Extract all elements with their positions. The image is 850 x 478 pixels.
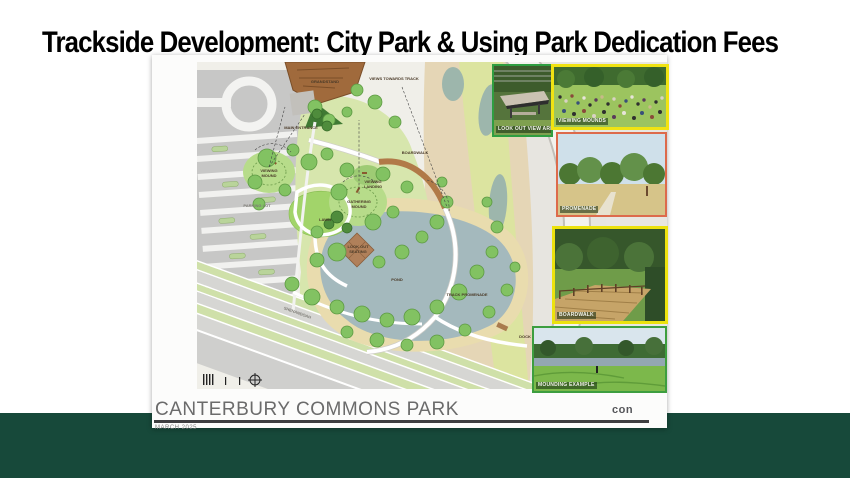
photo-boardwalk-image bbox=[555, 229, 665, 321]
sheet-title: CANTERBURY COMMONS PARK bbox=[155, 399, 459, 421]
label-main-entrance: MAIN ENTRANCE bbox=[284, 125, 318, 130]
label-lawn: LAWN bbox=[319, 217, 331, 222]
photo-promenade-image bbox=[558, 134, 665, 215]
photo-boardwalk: BOARDWALK bbox=[552, 226, 668, 324]
label-track-promenade: TRACK PROMENADE bbox=[446, 292, 487, 297]
photo-lookout-view-area: LOOK OUT VIEW AREA bbox=[492, 64, 553, 137]
label-viewing-mound-2: MOUND bbox=[261, 173, 276, 178]
publisher-logo-fragment: con bbox=[612, 404, 633, 416]
photo-caption: MOUNDING EXAMPLE bbox=[536, 382, 597, 389]
photo-lookout-image bbox=[494, 66, 551, 135]
label-grandstand: GRANDSTAND bbox=[311, 79, 339, 84]
label-gathering-mound-2: MOUND bbox=[351, 204, 366, 209]
plan-sheet-page: GRANDSTAND VIEWS TOWARDS TRACK MAIN ENTR… bbox=[152, 55, 667, 428]
label-parking-lot: PARKING LOT bbox=[243, 203, 271, 208]
label-pond: POND bbox=[391, 277, 403, 282]
photo-caption: BOARDWALK bbox=[557, 312, 596, 319]
label-dock: DOCK bbox=[519, 334, 531, 339]
label-look-out-seating-2: SEATING bbox=[349, 249, 366, 254]
photo-promenade-meadow: PROMENADE bbox=[556, 132, 667, 217]
sheet-date: MARCH 2025 bbox=[155, 425, 197, 431]
photo-mounding-example: MOUNDING EXAMPLE bbox=[532, 326, 667, 393]
label-boardwalk: BOARDWALK bbox=[402, 150, 429, 155]
photo-viewing-mounds: VIEWING MOUNDS bbox=[551, 64, 669, 130]
label-views-towards-track: VIEWS TOWARDS TRACK bbox=[369, 76, 419, 81]
photo-caption: VIEWING MOUNDS bbox=[556, 118, 608, 125]
photo-caption: LOOK OUT VIEW AREA bbox=[496, 126, 553, 133]
photo-caption: PROMENADE bbox=[560, 206, 598, 213]
label-viewing-landing-2: LANDING bbox=[364, 184, 382, 189]
presentation-slide: Trackside Development: City Park & Using… bbox=[0, 0, 850, 478]
sheet-title-rule bbox=[154, 420, 649, 423]
